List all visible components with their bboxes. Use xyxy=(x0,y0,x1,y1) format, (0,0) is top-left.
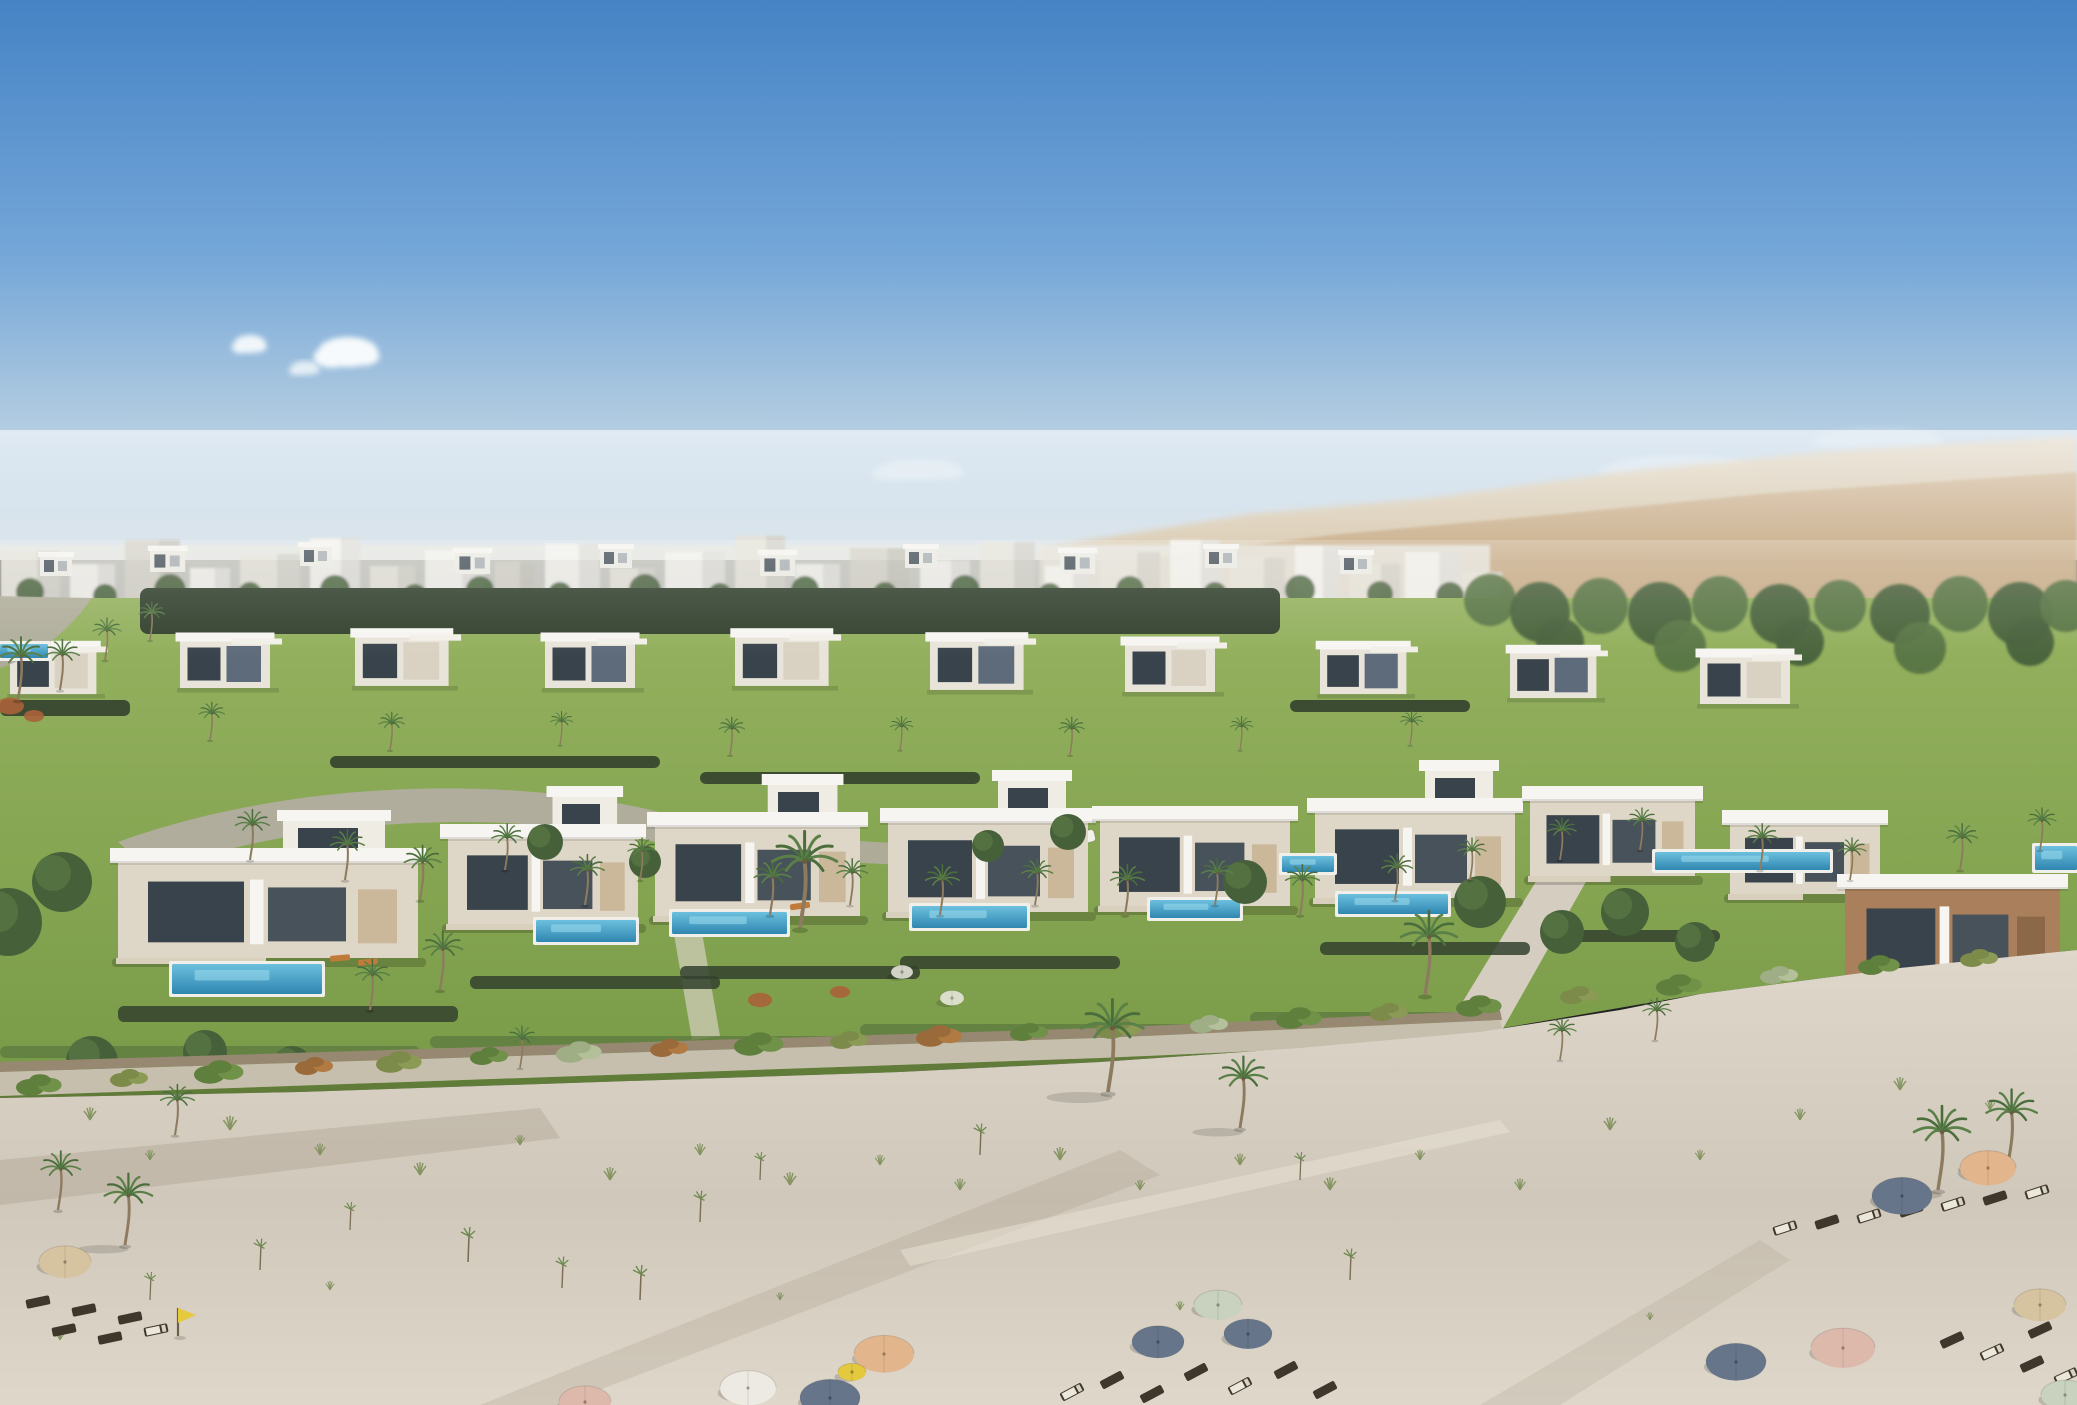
shrub-blob xyxy=(1469,995,1491,1007)
shrub-blob xyxy=(1289,1007,1311,1019)
palm-crown xyxy=(901,726,903,728)
villa-deck xyxy=(1728,894,1803,900)
shrub-blob xyxy=(1971,949,1989,959)
flower-shrub xyxy=(830,986,850,998)
garden-hedge xyxy=(900,956,1120,969)
palm-base-shadow xyxy=(13,700,24,704)
villa-shadow xyxy=(1317,694,1415,698)
swimming-pool xyxy=(169,961,325,997)
shrub-blob xyxy=(1201,1015,1219,1025)
palm-base-shadow xyxy=(1031,905,1039,908)
umbrella-pole-tip xyxy=(1986,1166,1989,1169)
palm-crown xyxy=(2010,1111,2014,1115)
palm-crown xyxy=(1036,872,1038,874)
tree-canopy-light xyxy=(35,855,71,891)
palm-crown xyxy=(1126,879,1129,882)
palm-crown xyxy=(521,1038,523,1040)
palm-crown xyxy=(1241,726,1243,728)
cloud-puff xyxy=(304,366,319,374)
shrub-blob xyxy=(208,1060,231,1073)
palm-crown xyxy=(346,844,349,847)
palm-base-shadow xyxy=(53,1210,63,1214)
villa-upper-roof xyxy=(547,786,624,797)
palm-crown xyxy=(506,837,508,839)
villa-shadow xyxy=(7,694,105,698)
swimming-pool xyxy=(669,909,790,937)
palm-base-shadow xyxy=(792,927,808,933)
umbrella-pole-tip xyxy=(2063,1393,2066,1396)
villa-glазing xyxy=(148,882,244,943)
sapling-trunk xyxy=(1300,1159,1301,1180)
tree-canopy-light xyxy=(1542,912,1568,938)
villa-upper-roof xyxy=(1419,760,1499,771)
palm-crown xyxy=(211,713,213,715)
palm-base-shadow xyxy=(207,740,213,742)
palm-base-shadow xyxy=(1652,1040,1659,1043)
villa-glазing xyxy=(676,844,742,901)
beachfront-resort-render xyxy=(0,0,2077,1405)
pool-highlight xyxy=(2041,851,2062,859)
pool-highlight xyxy=(1681,856,1769,862)
pool-highlight xyxy=(1355,898,1410,905)
shrub-blob xyxy=(1021,1023,1039,1033)
palm-base-shadow xyxy=(1237,750,1243,752)
palm-base-shadow xyxy=(119,1245,131,1249)
palm-base-shadow xyxy=(517,1068,524,1071)
flag-shadow xyxy=(174,1336,186,1340)
tree-canopy-light xyxy=(529,826,551,848)
shrub-blob xyxy=(1381,1003,1399,1013)
palm-crown xyxy=(391,723,393,725)
villa-roof xyxy=(1722,810,1888,825)
garden-tree xyxy=(1223,860,1267,904)
shrub-blob xyxy=(661,1039,679,1049)
palm-base-shadow xyxy=(557,745,563,747)
sapling-trunk xyxy=(562,1265,563,1288)
villa-roof xyxy=(1092,806,1298,821)
villa-window xyxy=(1708,664,1741,697)
villa-panel xyxy=(1555,658,1588,693)
palm-crown xyxy=(59,1168,62,1171)
umbrella-pole-tip xyxy=(63,1260,66,1263)
umbrella-pole-tip xyxy=(950,996,953,999)
palm-crown xyxy=(1940,1130,1944,1134)
palm-base-shadow xyxy=(1756,870,1764,873)
palm-base-shadow xyxy=(1418,995,1432,1000)
umbrella-pole-tip xyxy=(2038,1303,2041,1306)
palm-base-shadow xyxy=(637,880,644,883)
palm-crown xyxy=(127,1194,131,1198)
villa-column xyxy=(250,880,264,945)
cloud-puff xyxy=(314,347,350,368)
sapling-trunk xyxy=(760,1159,761,1180)
shrub-blob xyxy=(1571,986,1589,996)
umbrella-pole-tip xyxy=(828,1396,831,1399)
garden-tree xyxy=(1601,888,1649,936)
palm-crown xyxy=(1216,872,1218,874)
pool-highlight xyxy=(551,924,601,932)
palm-crown xyxy=(371,974,374,977)
shrub-blob xyxy=(481,1047,499,1057)
villa-glазing xyxy=(1335,829,1399,884)
umbrella-pole-tip xyxy=(1156,1340,1159,1343)
palm-crown xyxy=(1761,837,1763,839)
villa-shadow xyxy=(1697,704,1799,709)
palm-crown xyxy=(1561,830,1563,832)
palm-crown xyxy=(1411,721,1413,723)
palm-crown xyxy=(441,948,444,951)
villa-roof-shade xyxy=(1307,811,1523,815)
villa-roof xyxy=(647,812,868,827)
villa-glазing xyxy=(467,855,528,910)
villa-shadow xyxy=(542,688,644,693)
villa-deck xyxy=(1528,876,1611,882)
villa-window xyxy=(1517,659,1549,691)
palm-base-shadow xyxy=(387,750,393,752)
sapling-trunk xyxy=(350,1209,351,1230)
villa-column xyxy=(532,854,541,912)
palm-base-shadow xyxy=(1956,870,1964,873)
tree-canopy-light xyxy=(1677,924,1701,948)
umbrella-pole-tip xyxy=(882,1352,885,1355)
flower-shrub xyxy=(24,710,44,722)
palm-base-shadow xyxy=(1234,1128,1246,1132)
umbrella-pole-tip xyxy=(1216,1303,1219,1306)
umbrella-pole-tip xyxy=(1841,1346,1844,1349)
palm-crown xyxy=(941,879,944,882)
shrub-blob xyxy=(1669,974,1691,986)
sapling-trunk xyxy=(1350,1257,1351,1280)
palm-base-shadow xyxy=(1847,880,1854,883)
shrub-blob xyxy=(569,1041,591,1053)
palm-base-shadow xyxy=(415,900,424,903)
palm-base-shadow xyxy=(1296,915,1304,918)
hedge-row xyxy=(330,756,660,768)
villa-column xyxy=(1603,814,1610,865)
palm-base-shadow xyxy=(846,905,854,908)
villa-roof xyxy=(1837,874,2068,889)
villa-shadow xyxy=(927,690,1033,695)
villa-upper-roof xyxy=(992,770,1072,781)
swimming-pool xyxy=(1335,891,1451,917)
villa-roof-shade xyxy=(1837,887,2068,891)
sapling-trunk xyxy=(640,1274,641,1300)
villa-roof-shade xyxy=(110,861,426,865)
villa-shadow xyxy=(1122,692,1224,697)
aerial-scene-canvas xyxy=(0,0,2077,1405)
palm-base-shadow xyxy=(1557,1060,1564,1063)
shrub-blob xyxy=(841,1031,859,1041)
palm-base-shadow xyxy=(246,860,254,863)
villa-shadow xyxy=(732,686,838,691)
sapling-trunk xyxy=(468,1236,469,1262)
cloud-puff xyxy=(347,348,380,366)
villa-upper-roof xyxy=(762,774,844,785)
sapling-trunk xyxy=(260,1247,261,1270)
villa-roof xyxy=(1522,786,1703,801)
umbrella-pole-tip xyxy=(1734,1360,1737,1363)
tree-canopy-light xyxy=(1603,890,1632,919)
garden-tree xyxy=(1675,922,1715,962)
shrub-blob xyxy=(29,1074,51,1086)
palm-crown xyxy=(1396,867,1398,869)
palm-crown xyxy=(1561,1030,1563,1032)
palm-crown xyxy=(641,850,643,852)
palm-crown xyxy=(561,721,563,723)
pool-highlight xyxy=(689,916,747,924)
palm-crown xyxy=(1110,1026,1115,1031)
palm-crown xyxy=(586,869,589,872)
villa-roof-shade xyxy=(1522,799,1703,803)
villa-roof-shade xyxy=(1722,823,1888,827)
villa-column xyxy=(1184,836,1193,894)
palm-crown xyxy=(1656,1010,1658,1012)
palm-crown xyxy=(1961,837,1963,839)
cloud-puff xyxy=(289,366,306,376)
garden-tree xyxy=(527,824,563,860)
palm-crown xyxy=(251,824,254,827)
palm-crown xyxy=(1641,820,1643,822)
umbrella-pole-tip xyxy=(900,970,903,973)
villa-upper-roof xyxy=(277,810,391,821)
villa-shadow xyxy=(1507,698,1605,702)
garden-tree xyxy=(972,830,1004,862)
swimming-pool xyxy=(2032,843,2077,873)
shrub-blob xyxy=(121,1069,139,1079)
swimming-pool xyxy=(1652,849,1833,873)
umbrella-pole-tip xyxy=(850,1370,853,1373)
depth-haze xyxy=(0,540,2077,660)
palm-crown xyxy=(1242,1077,1246,1081)
villa-roof-shade xyxy=(647,825,868,829)
garden-tree xyxy=(1540,910,1584,954)
sapling-trunk xyxy=(150,1279,151,1300)
palm-crown xyxy=(2041,820,2043,822)
palm-base-shadow xyxy=(341,880,349,883)
umbrella-pole-tip xyxy=(746,1386,749,1389)
villa-shadow xyxy=(352,686,458,691)
swimming-pool xyxy=(1147,897,1243,921)
palm-base-shadow xyxy=(435,990,445,994)
palm-crown xyxy=(771,876,774,879)
villa-shadow xyxy=(177,688,279,693)
shrub-blob xyxy=(1771,966,1789,976)
tree-canopy-light xyxy=(974,832,993,851)
villa-roof xyxy=(110,848,426,863)
villa-glазing xyxy=(1547,815,1600,863)
palm-base-shadow xyxy=(1557,860,1564,863)
villa-roof-shade xyxy=(1092,819,1298,823)
tree-canopy-light xyxy=(185,1032,211,1058)
tree-canopy-light xyxy=(1457,879,1488,910)
villa-glazing xyxy=(268,887,346,941)
palm-crown xyxy=(421,861,424,864)
pool-highlight xyxy=(1164,904,1209,910)
garden-tree xyxy=(1050,814,1086,850)
villa-column xyxy=(745,842,754,903)
palm-base-shadow xyxy=(1931,1190,1945,1195)
palm-base-shadow xyxy=(1637,850,1644,853)
palm-base-shadow xyxy=(1100,1091,1115,1097)
garden-hedge xyxy=(680,966,920,979)
sapling-trunk xyxy=(700,1199,701,1222)
palm-crown xyxy=(851,872,853,874)
villa-glазing xyxy=(908,840,972,897)
palm-crown xyxy=(802,859,807,864)
palm-crown xyxy=(731,728,733,730)
palm-base-shadow xyxy=(1467,880,1474,883)
swimming-pool xyxy=(909,903,1030,931)
umbrella-pole-tip xyxy=(1246,1332,1249,1335)
palm-crown xyxy=(176,1099,179,1102)
palm-crown xyxy=(1427,935,1431,939)
garden-hedge xyxy=(118,1006,458,1022)
swimming-pool xyxy=(533,917,639,945)
cloud-puff xyxy=(232,341,251,354)
pool-highlight xyxy=(195,970,270,981)
palm-base-shadow xyxy=(1067,755,1073,757)
cloud-puff xyxy=(249,341,267,352)
palm-base-shadow xyxy=(1391,900,1399,903)
palm-base-shadow xyxy=(2037,850,2044,853)
villa-side-wall xyxy=(358,889,397,943)
shrub-blob xyxy=(306,1057,324,1067)
palm-base-shadow xyxy=(897,750,903,752)
palm-crown xyxy=(1301,879,1304,882)
palm-base-shadow xyxy=(366,1010,374,1013)
shrub-blob xyxy=(748,1032,771,1045)
villa-glazing xyxy=(1415,835,1467,883)
garden-hedge xyxy=(470,976,720,989)
palm-crown xyxy=(1471,850,1473,852)
villa-deck xyxy=(446,924,541,930)
palm-base-shadow xyxy=(1121,915,1129,918)
umbrella-pole-tip xyxy=(583,1400,586,1403)
shrub-blob xyxy=(389,1051,411,1063)
palm-crown xyxy=(1071,728,1073,730)
umbrella-pole-tip xyxy=(1900,1194,1903,1197)
palm-base-shadow xyxy=(936,915,944,918)
palm-base-shadow xyxy=(765,915,774,918)
garden-hedge xyxy=(1320,942,1530,955)
palm-base-shadow xyxy=(727,755,733,757)
shrub-blob xyxy=(1870,955,1890,966)
sapling-trunk xyxy=(980,1132,981,1155)
shrub-blob xyxy=(929,1025,951,1037)
hedge-row xyxy=(1290,700,1470,712)
villa-roof xyxy=(1307,798,1523,813)
palm-base-shadow xyxy=(1211,905,1219,908)
palm-base-shadow xyxy=(102,660,109,663)
flower-shrub xyxy=(748,993,772,1007)
palm-base-shadow xyxy=(56,690,64,693)
palm-base-shadow xyxy=(1407,745,1413,747)
palm-base-shadow xyxy=(501,870,509,873)
tree-canopy-light xyxy=(1052,816,1074,838)
villa-glazing xyxy=(1613,820,1656,863)
palm-base-shadow xyxy=(581,905,589,908)
palm-base-shadow xyxy=(171,1135,179,1138)
garden-tree xyxy=(1454,876,1506,928)
palm-crown xyxy=(1851,850,1853,852)
villa-panel xyxy=(1747,662,1782,698)
garden-tree xyxy=(32,852,92,912)
